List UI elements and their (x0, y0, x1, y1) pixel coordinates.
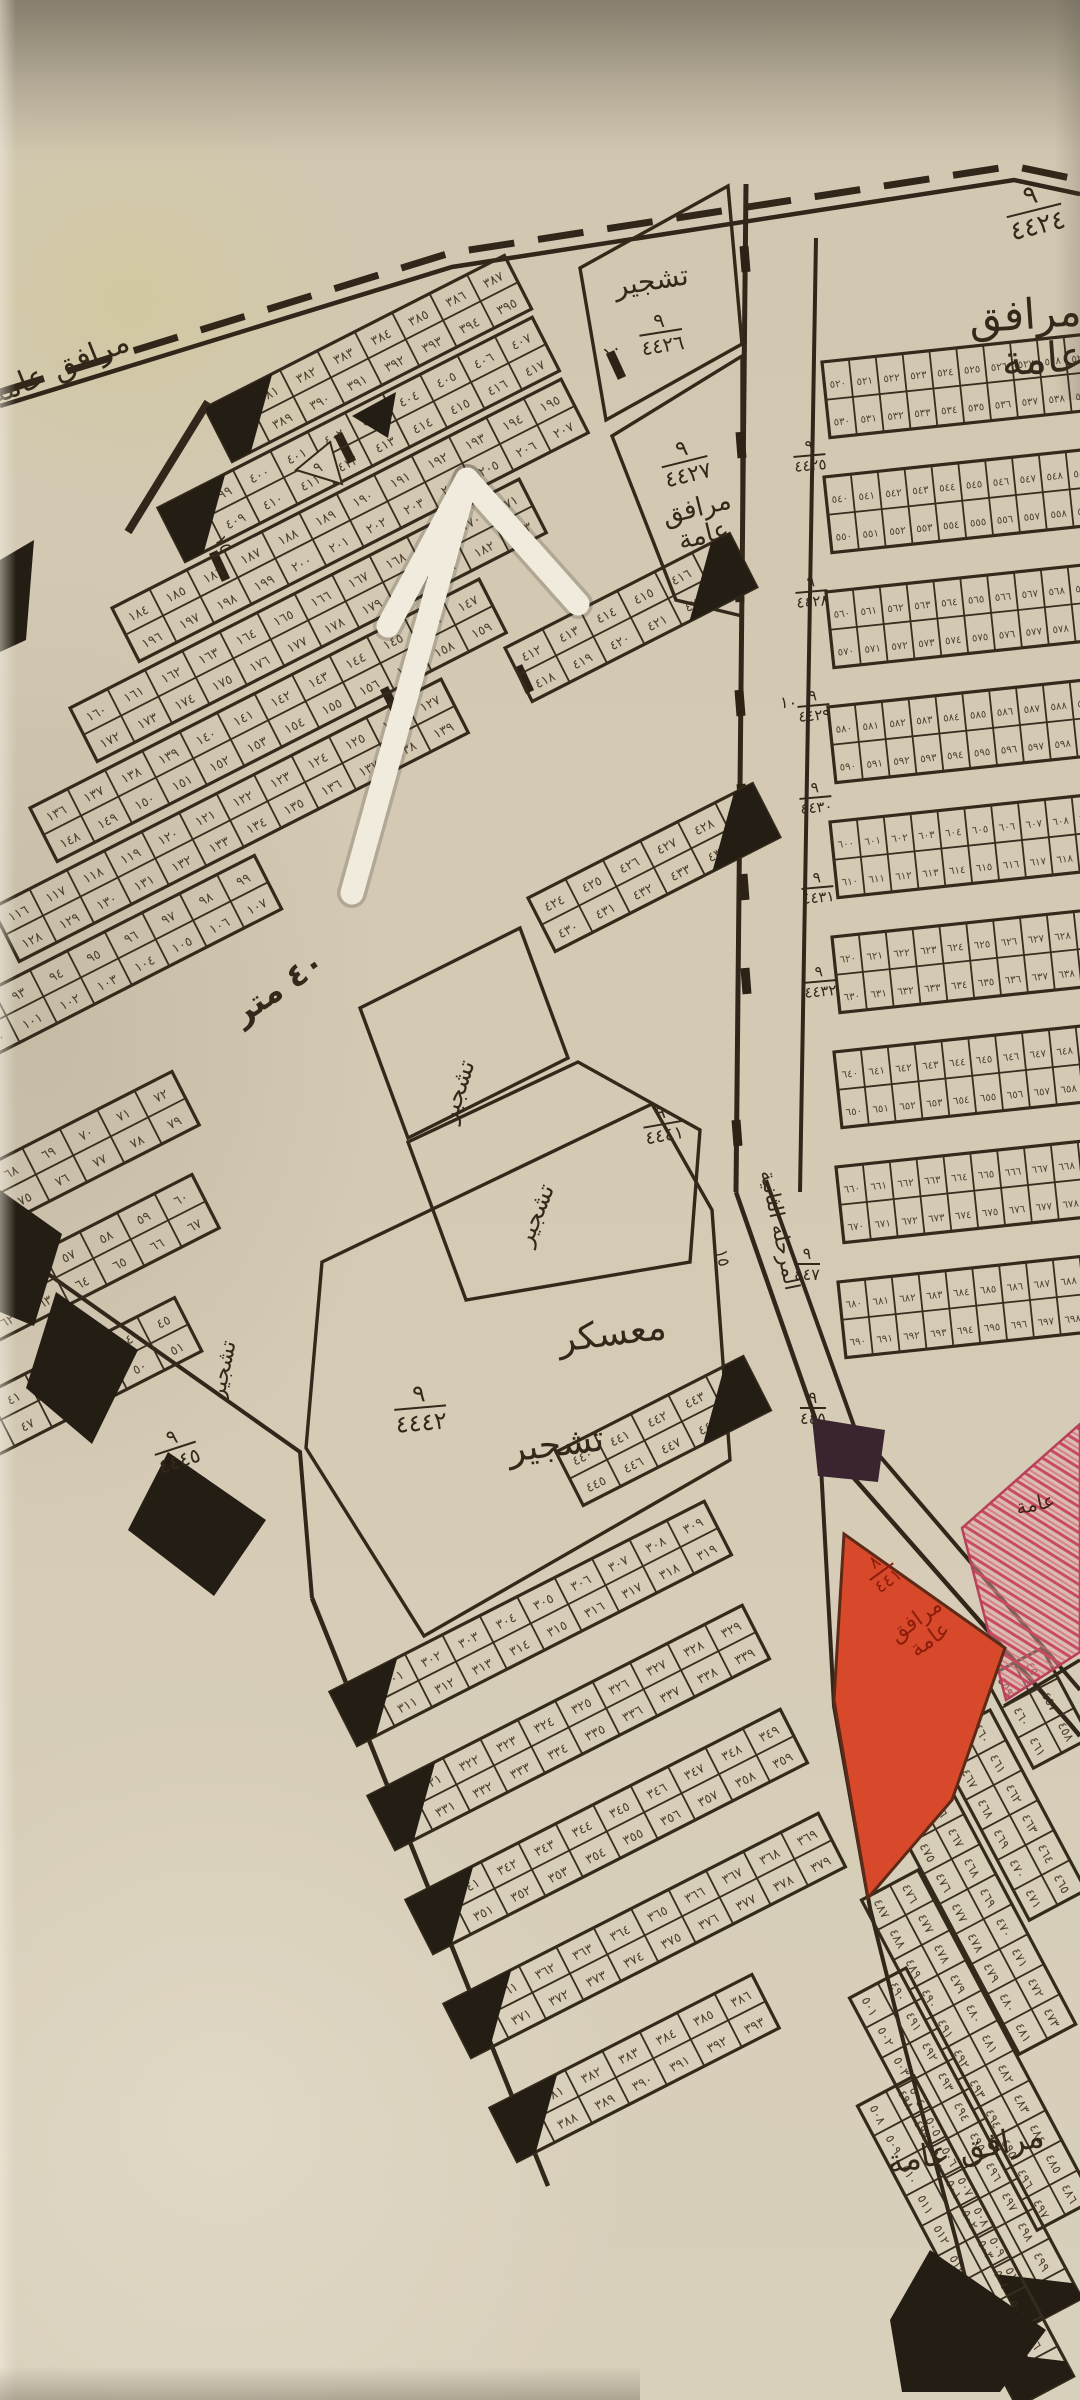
block-id-4445: ٩ ٤٤٤٥ (148, 1421, 203, 1478)
red-zone-block-id: ٨ ٤٤١ (858, 1547, 906, 1598)
block-id-4441: ٩ ٤٤٤١ (640, 1101, 685, 1149)
road-block-id-447: ٩ ٤٤٧ (794, 1246, 820, 1284)
road-width-10-a: ١٠ (600, 339, 625, 364)
road-block-id: ٩٤٤٣٠ (798, 779, 833, 817)
block-id-4427: ٩ ٤٤٢٧ (656, 433, 714, 493)
forty-meter-road-label: ٤٠ متر (226, 944, 331, 1030)
road-block-id-445: ٩ ٤٤٥ (800, 1390, 826, 1428)
facilities-label-bottom: مرافق عامة (884, 2118, 1047, 2180)
road-block-id: ٩٤٤٢٨ (794, 573, 829, 611)
road-block-id: ٩٤٤٣١ (800, 869, 835, 907)
photo-shadow-right (1054, 0, 1080, 400)
camp-label: معسكر (556, 1309, 668, 1361)
map-labels: مرافق عامة ٩ ٤٤٢٤ تشجير ٩ ٤٤٢٦ ٩ ٤٤٢٧ مر… (0, 0, 1080, 2400)
photo-edge-left (0, 0, 16, 2400)
road-width-15-b: ١٥ (713, 1248, 733, 1268)
pink-zone-label: عامة (1014, 1490, 1057, 1519)
block-id-4442: ٩ ٤٤٤٢ (392, 1380, 448, 1439)
facilities-label-top-right: مرافق عامة (880, 288, 1080, 392)
tashjir-label-left-strip: تشجير (206, 1339, 241, 1401)
road-width-10-b: ١٠ (780, 694, 797, 711)
tashjir-label-b: تشجير (512, 1181, 560, 1250)
road-block-id: ٩٤٤٢٥ (792, 437, 827, 475)
facilities-label-left: مرافق عامة (0, 326, 134, 412)
red-facilities-label: مرافق عامة (872, 1584, 974, 1677)
map-photo: ٣٨١٣٨٢٣٨٣٣٨٤٣٨٥٣٨٦٣٨٧٣٨٩٣٩٠٣٩١٣٩٢٣٩٣٣٩٤٣… (0, 0, 1080, 2400)
block-id-4426: ٩ ٤٤٢٦ (636, 307, 686, 359)
tashjir-label-top: تشجير (612, 260, 691, 302)
facilities-label-mid: مرافق عامة (640, 481, 760, 562)
road-block-id: ٩٤٤٢٩ (796, 687, 831, 725)
road-width-15-a: ١٥ (210, 532, 235, 557)
camp-tashjir-label: تشجير (506, 1420, 606, 1470)
road-block-id: ٩٤٤٣٢ (802, 963, 837, 1001)
photo-shadow-bottom (0, 2366, 640, 2400)
photo-shadow-top (0, 0, 1080, 150)
tashjir-label-a: تشجير (436, 1057, 480, 1126)
